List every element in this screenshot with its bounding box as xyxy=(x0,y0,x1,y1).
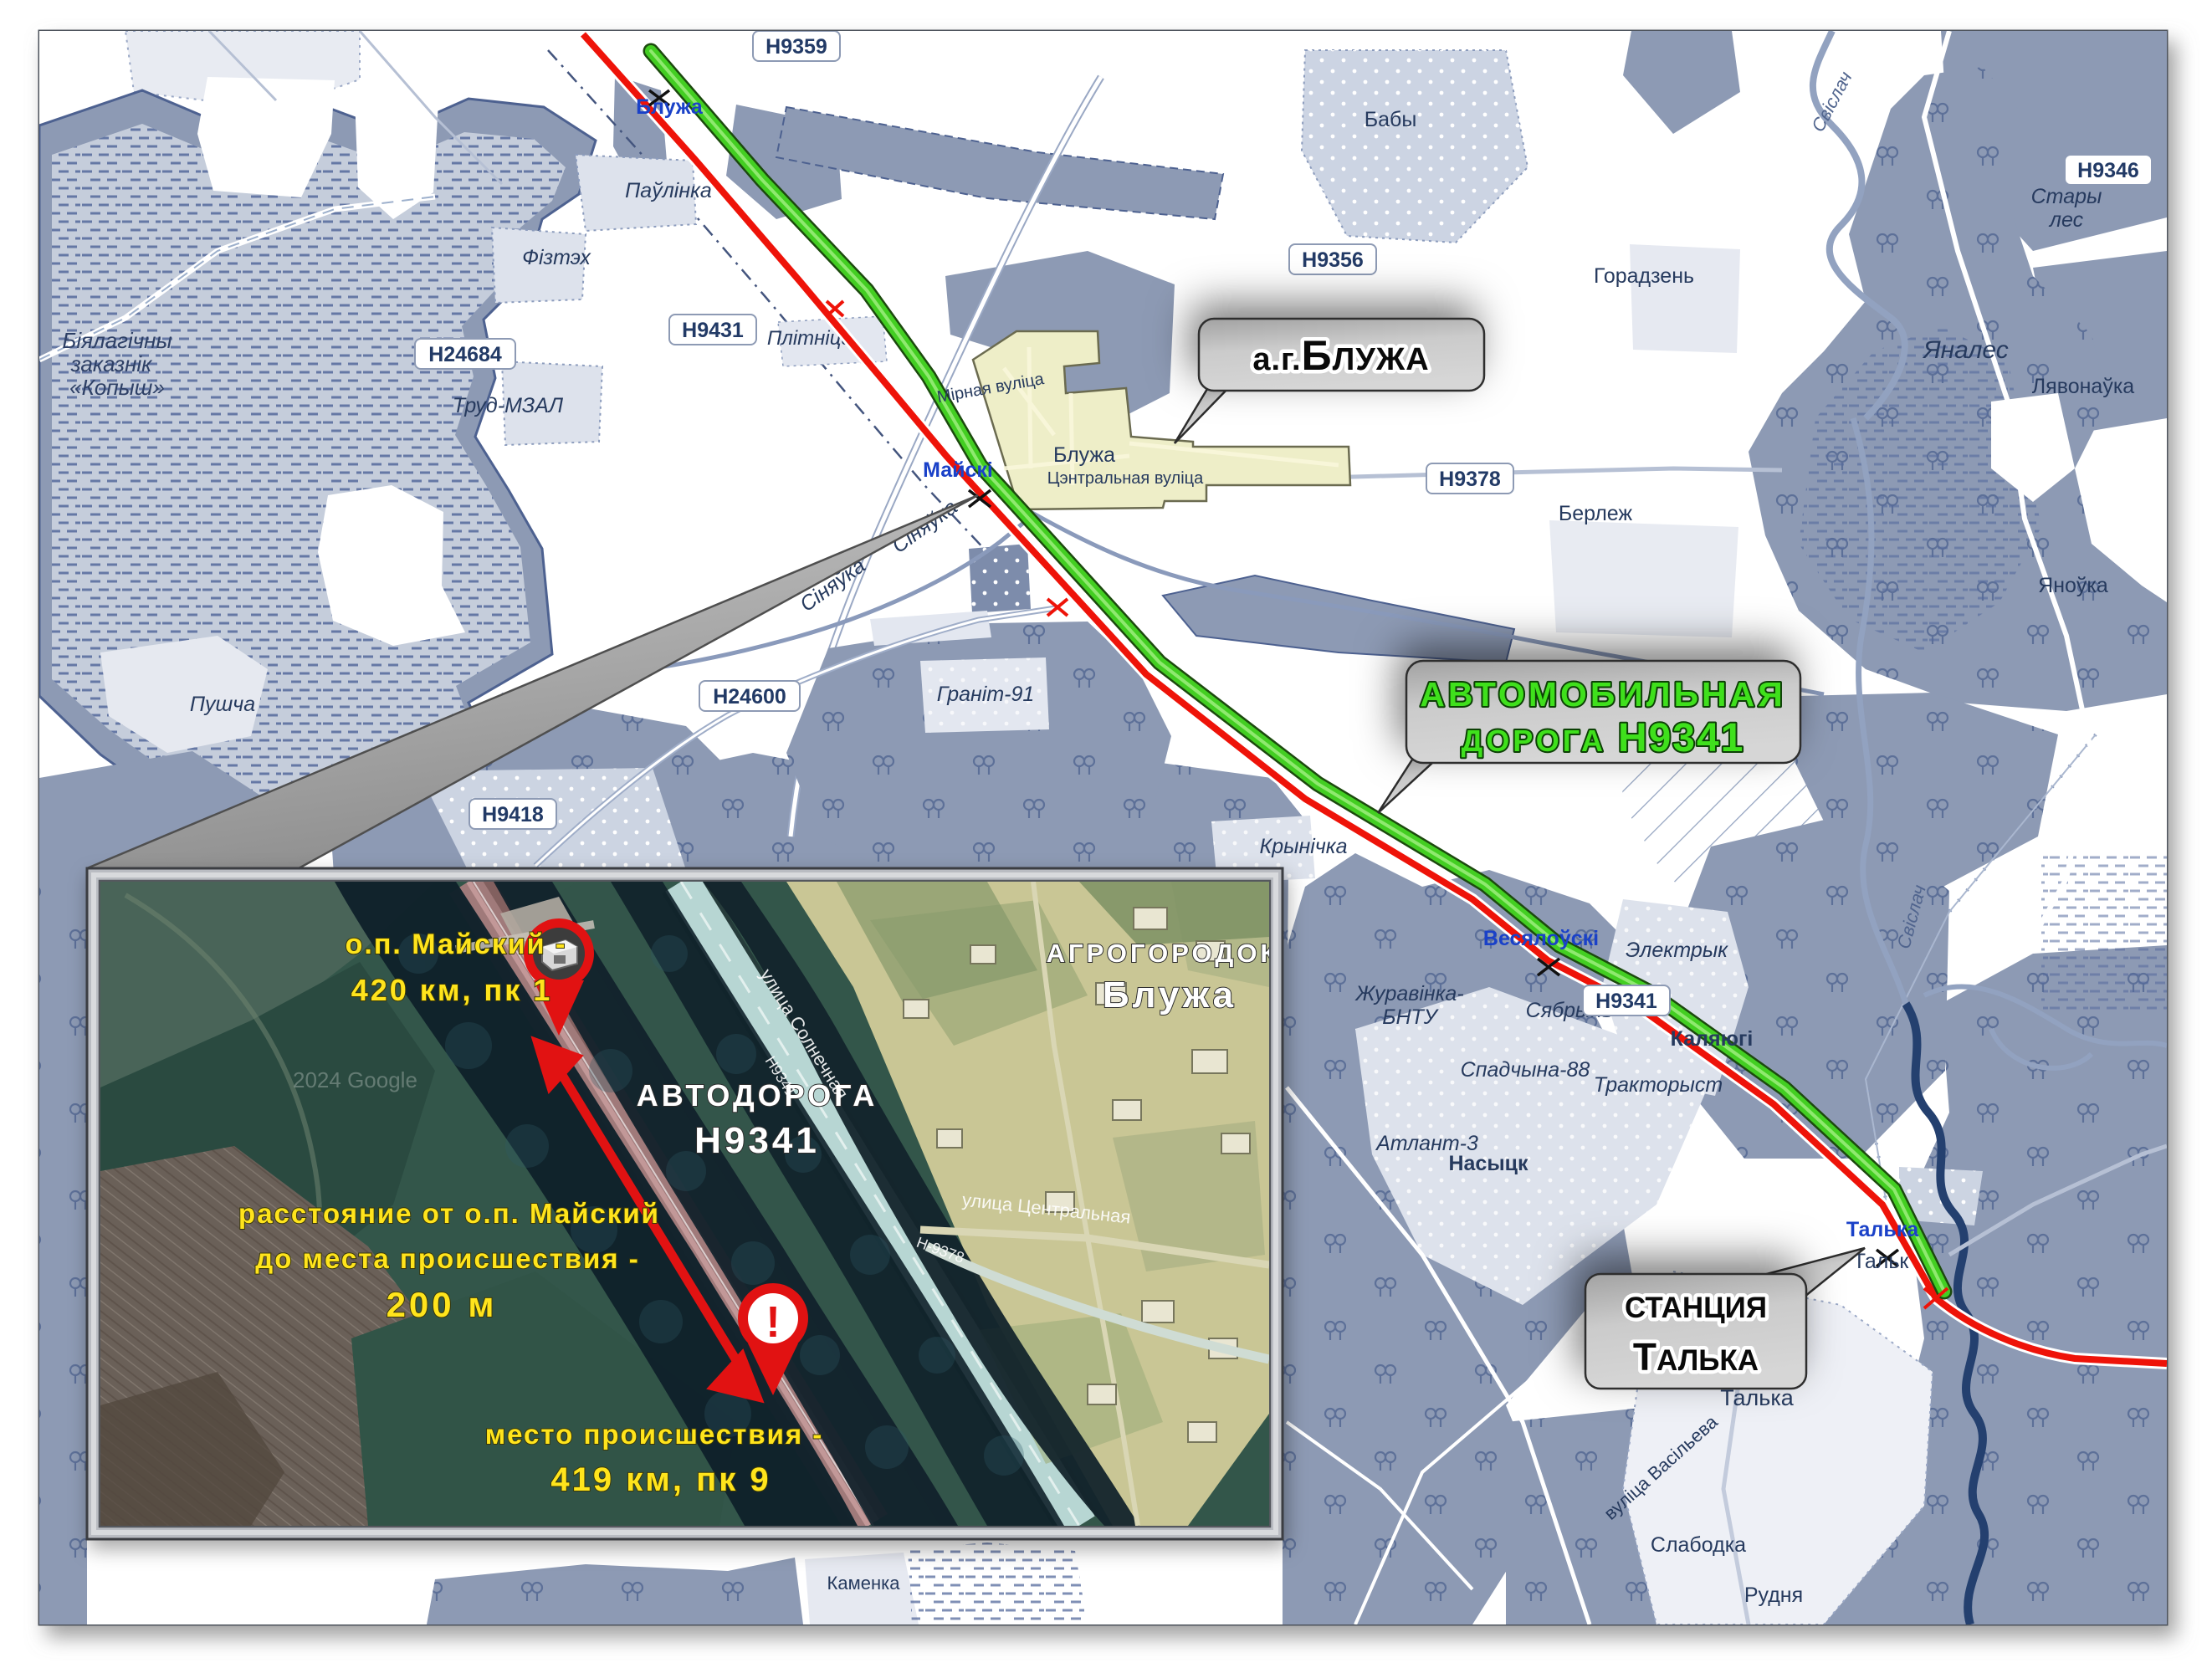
svg-text:заказнік: заказнік xyxy=(70,351,154,376)
svg-text:Н24684: Н24684 xyxy=(428,343,502,366)
svg-text:Н9418: Н9418 xyxy=(482,803,544,826)
svg-text:200 м: 200 м xyxy=(387,1285,498,1324)
svg-text:Н24600: Н24600 xyxy=(713,685,786,709)
svg-text:Каменка: Каменка xyxy=(827,1573,901,1594)
svg-text:Блужа: Блужа xyxy=(1103,975,1237,1016)
svg-text:Н9431: Н9431 xyxy=(682,319,744,342)
svg-text:Электрык: Электрык xyxy=(1626,939,1728,962)
svg-text:Граніт-91: Граніт-91 xyxy=(937,683,1035,706)
svg-text:!: ! xyxy=(765,1298,780,1347)
svg-text:Пушча: Пушча xyxy=(190,693,255,716)
svg-text:Н9356: Н9356 xyxy=(1302,248,1364,272)
svg-text:2024 Google: 2024 Google xyxy=(293,1067,417,1092)
svg-text:Бабы: Бабы xyxy=(1365,108,1417,131)
svg-text:«Копыш»: «Копыш» xyxy=(69,375,165,400)
svg-text:Талька: Талька xyxy=(1846,1218,1919,1241)
svg-text:место происшествия -: место происшествия - xyxy=(485,1419,824,1450)
svg-text:до места происшествия -: до места происшествия - xyxy=(255,1243,639,1274)
svg-text:Цэнтральная вуліца: Цэнтральная вуліца xyxy=(1047,469,1204,488)
svg-text:СТАНЦИЯ: СТАНЦИЯ xyxy=(1625,1292,1767,1324)
svg-text:Яноўка: Яноўка xyxy=(2038,574,2108,597)
svg-text:расстояние от о.п. Майский: расстояние от о.п. Майский xyxy=(238,1198,660,1229)
svg-text:Фізтэх: Фізтэх xyxy=(522,246,591,269)
svg-text:БНТУ: БНТУ xyxy=(1382,1005,1440,1029)
svg-text:Тальк: Тальк xyxy=(1853,1250,1910,1273)
svg-text:АГРОГОРОДОК: АГРОГОРОДОК xyxy=(1047,939,1280,968)
svg-text:Труд-МЗАЛ: Труд-МЗАЛ xyxy=(453,394,564,417)
svg-text:Тракторыст: Тракторыст xyxy=(1594,1073,1723,1097)
svg-text:Н9378: Н9378 xyxy=(1439,468,1501,491)
svg-text:Н9341: Н9341 xyxy=(694,1120,820,1161)
svg-text:Насыцк: Насыцк xyxy=(1448,1152,1528,1175)
svg-text:Блужа: Блужа xyxy=(636,95,704,119)
svg-text:Журавінка-: Журавінка- xyxy=(1354,982,1463,1005)
svg-text:Берлеж: Берлеж xyxy=(1559,502,1633,525)
svg-text:Спадчына-88: Спадчына-88 xyxy=(1461,1058,1590,1082)
svg-text:420 км, пк 1: 420 км, пк 1 xyxy=(351,973,553,1007)
svg-text:Блужа: Блужа xyxy=(1053,443,1115,467)
svg-text:Стары: Стары xyxy=(2031,185,2102,208)
svg-text:лес: лес xyxy=(2048,208,2084,232)
svg-text:Н9359: Н9359 xyxy=(765,35,827,59)
svg-text:АВТОМОБИЛЬНАЯ: АВТОМОБИЛЬНАЯ xyxy=(1420,675,1785,714)
svg-text:419 км, пк 9: 419 км, пк 9 xyxy=(550,1461,771,1498)
svg-text:Біялагічны: Біялагічны xyxy=(62,328,172,353)
svg-text:Н9346: Н9346 xyxy=(2077,159,2139,182)
svg-text:Лявонаўка: Лявонаўка xyxy=(2032,375,2135,398)
svg-text:Каляюгі: Каляюгі xyxy=(1671,1027,1754,1051)
svg-text:Слабодка: Слабодка xyxy=(1651,1533,1746,1557)
svg-text:Рудня: Рудня xyxy=(1744,1583,1803,1607)
svg-text:Весялоўскі: Весялоўскі xyxy=(1483,927,1599,950)
svg-text:о.п. Майский -: о.п. Майский - xyxy=(346,929,567,960)
svg-text:Крынічка: Крынічка xyxy=(1260,835,1348,858)
svg-text:Майскі: Майскі xyxy=(923,458,993,482)
svg-text:Яналес: Яналес xyxy=(1922,336,2009,364)
svg-text:Паўлінка: Паўлінка xyxy=(625,179,712,202)
svg-text:Горадзень: Горадзень xyxy=(1594,264,1694,288)
svg-text:Н9341: Н9341 xyxy=(1595,990,1657,1013)
